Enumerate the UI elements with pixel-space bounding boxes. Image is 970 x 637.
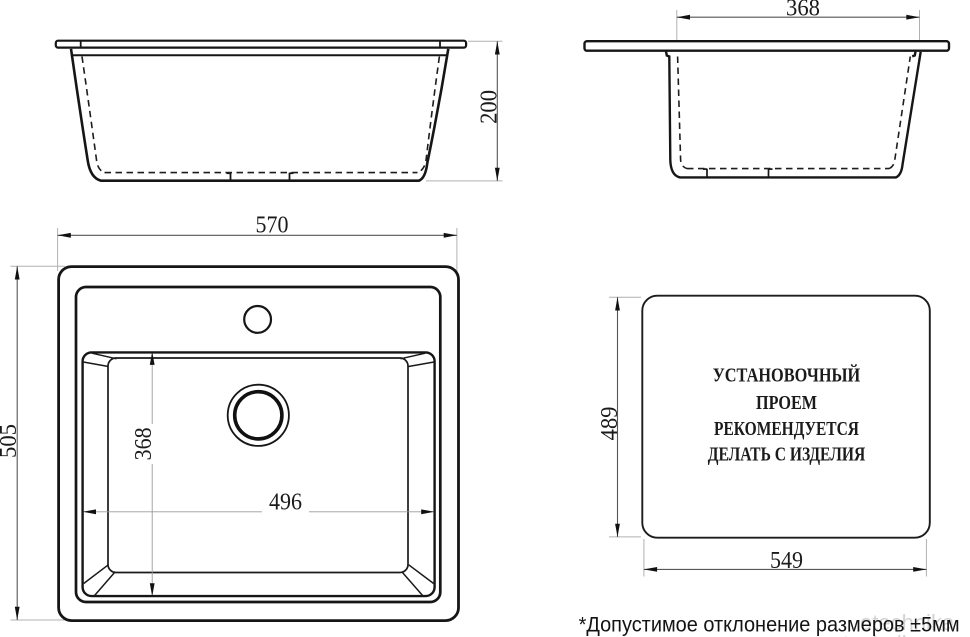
svg-text:496: 496 (269, 490, 302, 516)
svg-text:489: 489 (597, 407, 623, 441)
svg-text:РЕКОМЕНДУЕТСЯ: РЕКОМЕНДУЕТСЯ (714, 419, 859, 440)
svg-text:368: 368 (131, 427, 157, 460)
svg-text:200: 200 (476, 90, 502, 124)
svg-text:570: 570 (256, 213, 289, 239)
svg-text:УСТАНОВОЧНЫЙ: УСТАНОВОЧНЫЙ (713, 365, 861, 387)
svg-text:549: 549 (770, 548, 803, 574)
svg-text:505: 505 (0, 424, 22, 458)
svg-text:368: 368 (786, 0, 820, 22)
svg-text:*Допустимое отклонение размеро: *Допустимое отклонение размеров ±5мм (579, 613, 960, 637)
svg-text:ПРОЕМ: ПРОЕМ (756, 393, 817, 414)
svg-text:ДЕЛАТЬ С ИЗДЕЛИЯ: ДЕЛАТЬ С ИЗДЕЛИЯ (708, 445, 866, 466)
